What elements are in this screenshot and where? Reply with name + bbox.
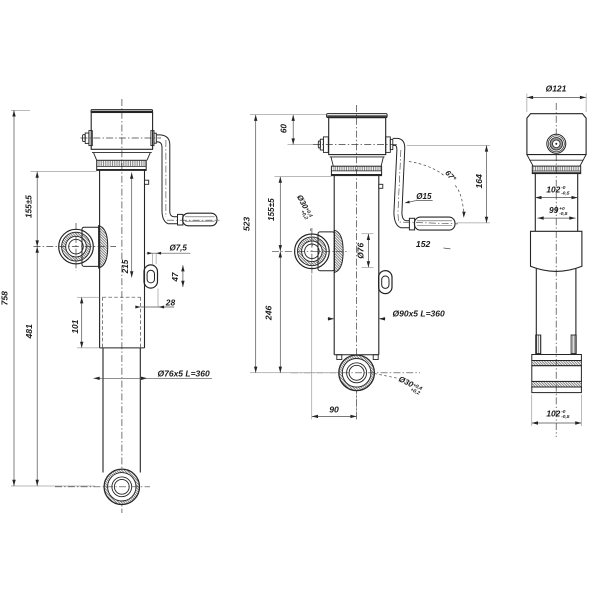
svg-text:Ø76: Ø76 bbox=[356, 243, 366, 259]
svg-text:215: 215 bbox=[121, 259, 130, 274]
svg-text:-0,5: -0,5 bbox=[561, 190, 570, 196]
svg-text:47: 47 bbox=[171, 272, 180, 282]
svg-text:-0: -0 bbox=[561, 409, 566, 415]
svg-text:-0,5: -0,5 bbox=[559, 211, 568, 217]
svg-text:Ø15: Ø15 bbox=[416, 192, 432, 201]
svg-text:90: 90 bbox=[329, 405, 339, 415]
svg-text:+0: +0 bbox=[559, 206, 565, 212]
svg-text:-0: -0 bbox=[561, 185, 566, 191]
svg-text:101: 101 bbox=[70, 319, 80, 333]
svg-text:Ø121: Ø121 bbox=[546, 83, 567, 93]
svg-text:99: 99 bbox=[549, 205, 559, 215]
svg-text:164: 164 bbox=[474, 174, 484, 189]
svg-text:246: 246 bbox=[264, 306, 274, 322]
svg-text:523: 523 bbox=[242, 217, 252, 232]
svg-text:155±5: 155±5 bbox=[267, 198, 276, 221]
svg-text:Ø7,5: Ø7,5 bbox=[170, 243, 188, 252]
svg-text:Ø90x5 L=360: Ø90x5 L=360 bbox=[393, 308, 445, 318]
svg-text:155±5: 155±5 bbox=[25, 195, 34, 218]
svg-text:481: 481 bbox=[24, 324, 34, 340]
svg-text:102: 102 bbox=[546, 408, 560, 418]
svg-text:758: 758 bbox=[0, 291, 10, 306]
svg-text:102: 102 bbox=[546, 185, 560, 195]
svg-text:28: 28 bbox=[165, 297, 176, 307]
svg-text:60: 60 bbox=[279, 124, 288, 134]
svg-text:Ø76x5 L=360: Ø76x5 L=360 bbox=[158, 368, 210, 378]
svg-text:152: 152 bbox=[416, 239, 431, 249]
svg-text:-0,5: -0,5 bbox=[561, 414, 570, 420]
